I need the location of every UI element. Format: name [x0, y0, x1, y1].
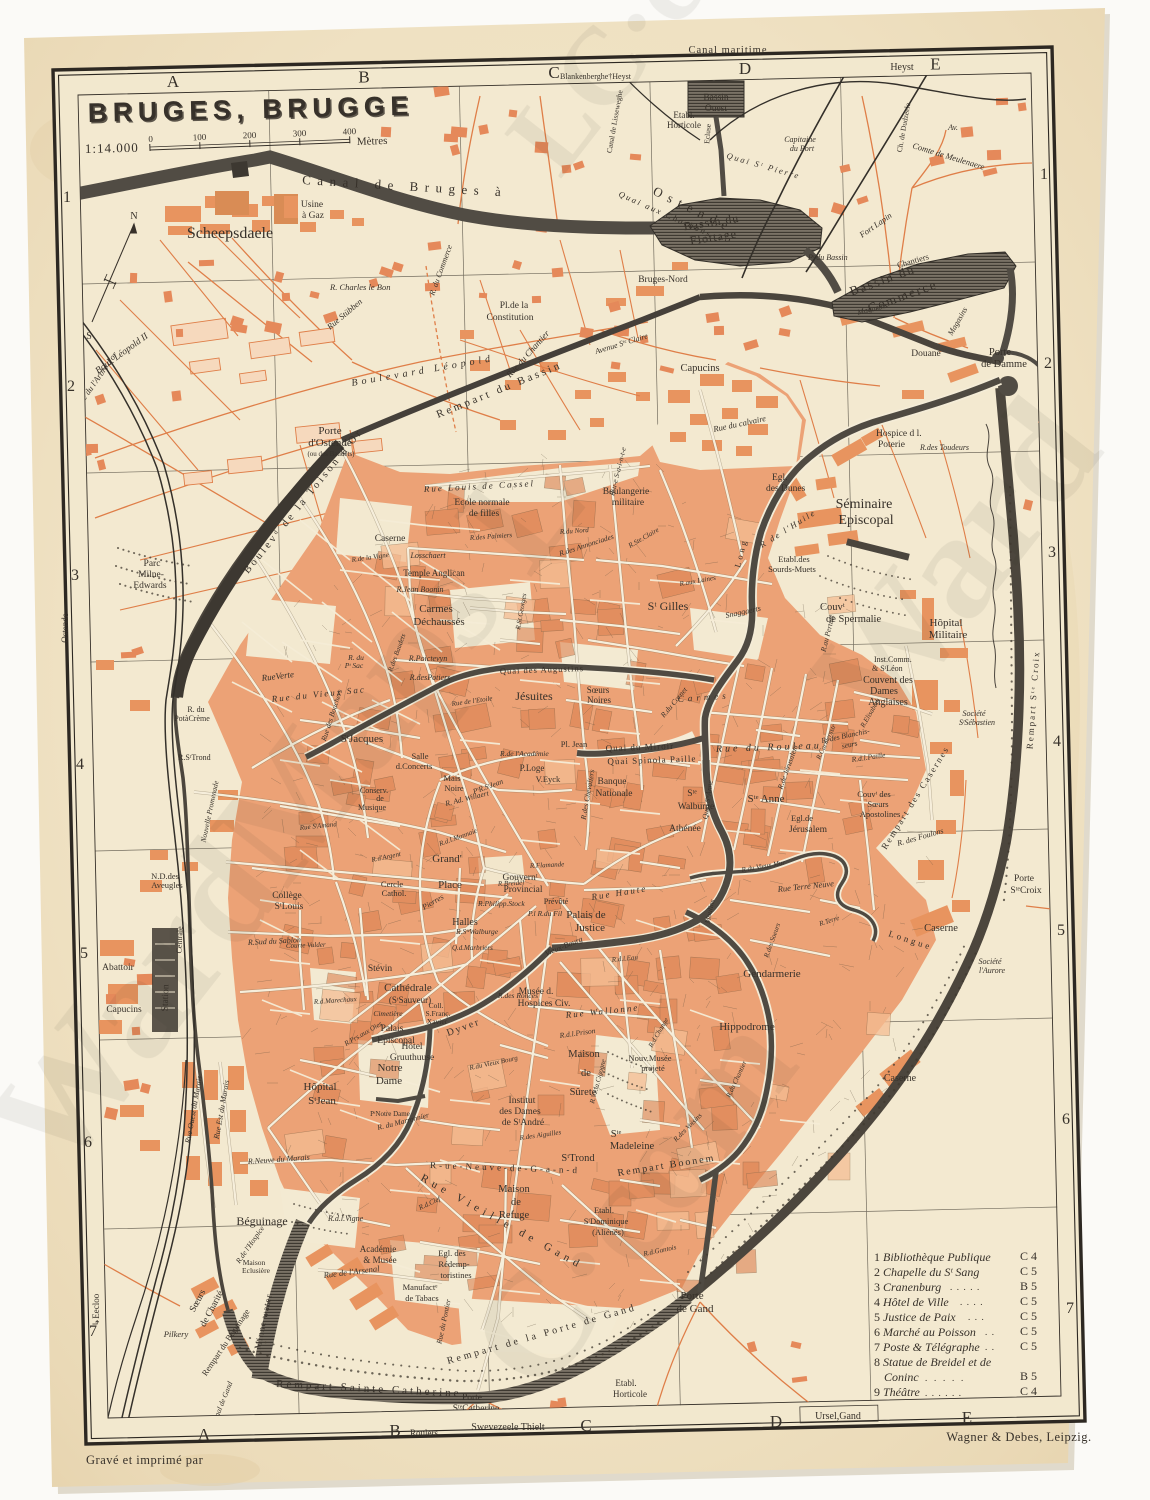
svg-text:E: E	[962, 1408, 972, 1427]
svg-text:Béguinage: Béguinage	[236, 1214, 287, 1228]
svg-text:B: B	[358, 68, 369, 87]
svg-text:Séminaire: Séminaire	[836, 497, 893, 512]
svg-text:Edwards: Edwards	[133, 581, 167, 591]
svg-text:A: A	[198, 1425, 211, 1444]
svg-text:E: E	[930, 55, 940, 74]
svg-text:Cathédrale: Cathédrale	[384, 982, 432, 994]
svg-text:Sourds-Muets: Sourds-Muets	[768, 564, 816, 574]
svg-text:Athénée: Athénée	[669, 824, 701, 834]
svg-text:des Dames: des Dames	[499, 1107, 541, 1117]
svg-text:Manufactᵉ: Manufactᵉ	[403, 1282, 439, 1292]
svg-text:de Gand: de Gand	[677, 1303, 714, 1315]
svg-text:Q.d.Marbriers: Q.d.Marbriers	[452, 944, 493, 952]
svg-text:Porte: Porte	[318, 425, 341, 437]
svg-text:Courte Vulder: Courte Vulder	[286, 941, 326, 950]
svg-text:1: 1	[1040, 166, 1048, 183]
svg-text:Pilkery: Pilkery	[163, 1329, 189, 1339]
svg-text:Canal maritime: Canal maritime	[688, 45, 767, 56]
svg-text:. . . . .: . . . . .	[925, 1373, 963, 1383]
svg-text:Horticole: Horticole	[613, 1389, 647, 1399]
svg-text:Justice: Justice	[575, 922, 605, 934]
svg-text:2: 2	[67, 378, 75, 395]
svg-text:4: 4	[1053, 733, 1061, 750]
svg-text:Noire: Noire	[444, 783, 464, 793]
svg-text:Sœurs: Sœurs	[587, 685, 610, 695]
svg-text:Nationale: Nationale	[596, 789, 633, 799]
svg-text:C: C	[580, 1416, 591, 1435]
svg-text:. . .: . . .	[968, 1312, 984, 1322]
svg-text:Capucins: Capucins	[680, 363, 719, 374]
svg-text:Bassin: Bassin	[703, 93, 729, 103]
svg-text:Notre: Notre	[377, 1062, 402, 1074]
svg-text:de Tabacs: de Tabacs	[405, 1293, 438, 1303]
svg-text:Ursel,Gand: Ursel,Gand	[815, 1411, 861, 1422]
svg-text:A: A	[167, 72, 180, 91]
svg-text:R.SᵗᵉWalburge: R.SᵗᵉWalburge	[455, 927, 499, 936]
svg-text:l'Aurore: l'Aurore	[979, 966, 1005, 975]
svg-text:6: 6	[1062, 1111, 1070, 1128]
svg-text:à Gaz: à Gaz	[302, 211, 324, 221]
svg-text:Heyst: Heyst	[890, 62, 914, 73]
svg-text:Milne-: Milne-	[138, 570, 164, 580]
svg-text:Maison: Maison	[498, 1184, 530, 1195]
svg-text:C 5: C 5	[1020, 1324, 1037, 1338]
svg-text:Xavier: Xavier	[427, 1017, 448, 1026]
svg-text:R.SᵗTrond: R.SᵗTrond	[178, 753, 211, 762]
svg-text:1:14.000: 1:14.000	[85, 140, 139, 156]
svg-text:Ecluse: Ecluse	[702, 123, 713, 144]
svg-text:Institut: Institut	[509, 1096, 536, 1106]
svg-text:C 4: C 4	[1020, 1249, 1037, 1263]
svg-text:SᵗᵉCroix: SᵗᵉCroix	[1010, 886, 1041, 896]
svg-text:3 Cranenburg: 3 Cranenburg	[874, 1280, 941, 1294]
svg-text:P.l R.du Fil: P.l R.du Fil	[527, 909, 562, 918]
svg-text:Horticole: Horticole	[667, 120, 701, 130]
svg-text:↳Eecloo: ↳Eecloo	[91, 1293, 101, 1326]
svg-text:D: D	[739, 59, 751, 78]
svg-text:Roulers: Roulers	[410, 1428, 438, 1438]
svg-text:Cathol.: Cathol.	[382, 888, 407, 898]
svg-text:Eclusière: Eclusière	[242, 1266, 271, 1275]
svg-text:de Damme: de Damme	[981, 359, 1027, 370]
svg-text:Société: Société	[978, 957, 1002, 966]
svg-text:Etabl.des: Etabl.des	[778, 554, 809, 564]
svg-text:Académie: Académie	[360, 1244, 396, 1254]
svg-text:C 5: C 5	[1020, 1264, 1037, 1278]
svg-text:Caserne: Caserne	[884, 1073, 917, 1084]
svg-text:Pl. Jean: Pl. Jean	[561, 739, 588, 749]
svg-text:de: de	[581, 1068, 591, 1079]
svg-text:4 Hôtel de Ville: 4 Hôtel de Ville	[874, 1295, 949, 1309]
svg-text:Sᵗᵉ Anne: Sᵗᵉ Anne	[747, 793, 784, 805]
svg-text:Mais: Mais	[444, 773, 461, 783]
svg-text:C 4: C 4	[1020, 1384, 1037, 1398]
svg-text:2 Chapelle du Sᵗ Sang: 2 Chapelle du Sᵗ Sang	[874, 1265, 979, 1279]
svg-text:Dame: Dame	[376, 1075, 402, 1087]
svg-text:Noires: Noires	[587, 695, 611, 705]
svg-text:N: N	[130, 211, 137, 222]
svg-text:Grand': Grand'	[432, 853, 461, 865]
svg-text:du Port: du Port	[790, 144, 815, 153]
svg-text:R. du: R. du	[187, 705, 204, 714]
svg-text:. . . . .: . . . . .	[950, 1282, 979, 1292]
svg-text:Coninc: Coninc	[884, 1370, 919, 1384]
svg-text:Jérusalem: Jérusalem	[789, 825, 828, 835]
svg-text:Porte: Porte	[989, 347, 1012, 358]
svg-text:R. Charles le Bon: R. Charles le Bon	[329, 282, 390, 292]
svg-text:Etabl.: Etabl.	[615, 1378, 636, 1388]
svg-text:& Musée: & Musée	[363, 1255, 396, 1265]
svg-text:V.Eyck: V.Eyck	[536, 774, 561, 784]
svg-text:Palais de: Palais de	[566, 909, 606, 921]
svg-text:Etabl.: Etabl.	[673, 110, 694, 120]
svg-text:400: 400	[342, 126, 356, 137]
svg-text:Egl.: Egl.	[772, 473, 788, 483]
svg-text:R.des Ronces: R.des Ronces	[497, 991, 538, 1000]
svg-text:P.Loge: P.Loge	[520, 763, 545, 773]
svg-text:Caserne: Caserne	[924, 923, 958, 934]
svg-text:D: D	[770, 1412, 782, 1431]
svg-text:B 5: B 5	[1020, 1279, 1037, 1293]
svg-text:Place: Place	[438, 879, 462, 891]
svg-text:de SᵗAndré: de SᵗAndré	[502, 1118, 544, 1128]
svg-text:Jésuites: Jésuites	[515, 689, 553, 703]
svg-text:Couvᵗ des: Couvᵗ des	[857, 789, 891, 799]
svg-text:Hospice d l.: Hospice d l.	[876, 429, 922, 439]
svg-text:Porte: Porte	[462, 1393, 482, 1403]
svg-text:de: de	[511, 1197, 521, 1208]
svg-text:Scheepsdaele: Scheepsdaele	[187, 225, 273, 242]
svg-text:5: 5	[1057, 922, 1065, 939]
svg-text:R.de l'Académie: R.de l'Académie	[499, 749, 549, 758]
svg-text:Capitaine: Capitaine	[784, 135, 816, 144]
svg-text:5 Justice de Paix: 5 Justice de Paix	[874, 1310, 956, 1324]
svg-text:1: 1	[63, 189, 71, 206]
svg-text:SᵗSébastien: SᵗSébastien	[959, 718, 995, 727]
svg-text:Palais: Palais	[381, 1024, 404, 1034]
svg-text:Constitution: Constitution	[487, 313, 534, 323]
svg-text:B: B	[389, 1421, 400, 1440]
svg-text:Société: Société	[962, 709, 986, 718]
svg-text:Hôtel: Hôtel	[401, 1042, 422, 1052]
svg-text:Sœurs: Sœurs	[867, 799, 888, 809]
svg-text:2: 2	[1044, 355, 1052, 372]
svg-text:Banque: Banque	[597, 777, 626, 787]
svg-text:Gendarmerie: Gendarmerie	[743, 968, 801, 980]
svg-text:8 Statue de Breidel et de: 8 Statue de Breidel et de	[874, 1355, 992, 1369]
svg-text:4: 4	[76, 756, 84, 773]
svg-text:Ouest: Ouest	[705, 104, 728, 114]
svg-text:militaire: militaire	[612, 498, 644, 508]
svg-text:R.Philipp.Stock: R.Philipp.Stock	[477, 899, 525, 908]
svg-text:Sᵗ Gilles: Sᵗ Gilles	[648, 599, 689, 613]
svg-text:Ostende: Ostende	[60, 613, 70, 643]
svg-text:C 5: C 5	[1020, 1294, 1037, 1308]
svg-text:Hôpital: Hôpital	[304, 1081, 337, 1093]
svg-text:C 5: C 5	[1020, 1309, 1037, 1323]
svg-text:200: 200	[243, 130, 257, 141]
svg-text:Wagner & Debes, Leipzig.: Wagner & Debes, Leipzig.	[946, 1430, 1091, 1444]
svg-text:PotàCrème: PotàCrème	[174, 714, 210, 723]
svg-text:300: 300	[293, 128, 307, 139]
svg-text:9 Théâtre: 9 Théâtre	[874, 1385, 921, 1399]
svg-text:1 Bibliothèque Publique: 1 Bibliothèque Publique	[874, 1250, 991, 1264]
svg-text:Mètres: Mètres	[357, 135, 388, 148]
svg-text:S: S	[86, 331, 92, 342]
svg-text:Maison: Maison	[568, 1049, 600, 1060]
svg-text:Parc: Parc	[144, 559, 161, 569]
svg-text:B 5: B 5	[1020, 1369, 1037, 1383]
svg-text:Porte: Porte	[1014, 874, 1034, 884]
svg-text:Prévôté: Prévôté	[544, 897, 569, 906]
svg-text:Egl.de: Egl.de	[791, 813, 813, 823]
svg-text:7: 7	[1066, 1300, 1074, 1317]
svg-text:Douane: Douane	[911, 349, 941, 359]
svg-text:Rédemp-: Rédemp-	[438, 1259, 469, 1269]
svg-text:Av.: Av.	[947, 122, 958, 132]
svg-text:Stévin: Stévin	[368, 964, 393, 974]
svg-text:Hospices Civ.: Hospices Civ.	[518, 999, 571, 1009]
svg-text:Gravé et imprimé par: Gravé et imprimé par	[86, 1453, 204, 1467]
svg-text:. .: . .	[985, 1327, 994, 1337]
svg-text:Usine: Usine	[301, 200, 323, 210]
svg-text:R.Breidel: R.Breidel	[497, 879, 525, 888]
svg-text:R.d.l.Vigne: R.d.l.Vigne	[327, 1214, 364, 1223]
svg-text:Pᵗ du Bassin: Pᵗ du Bassin	[807, 253, 848, 262]
svg-text:. . . .: . . . .	[960, 1297, 983, 1307]
svg-text:des Dunes: des Dunes	[766, 484, 806, 494]
svg-text:Pl.de la: Pl.de la	[500, 301, 529, 311]
svg-text:C 5: C 5	[1020, 1339, 1037, 1353]
svg-text:Porte: Porte	[680, 1290, 703, 1302]
svg-text:. .: . .	[985, 1342, 994, 1352]
svg-text:. . . . . .: . . . . . .	[925, 1388, 961, 1398]
svg-text:Apostolines: Apostolines	[860, 809, 901, 819]
svg-text:Poterie: Poterie	[878, 440, 905, 450]
svg-text:SᵗJean: SᵗJean	[308, 1095, 336, 1107]
svg-text:Sᵗᵉ: Sᵗᵉ	[687, 789, 697, 799]
svg-text:7 Poste & Télégraphe: 7 Poste & Télégraphe	[874, 1340, 980, 1354]
svg-text:Swevezeele Thielt: Swevezeele Thielt	[471, 1422, 545, 1433]
svg-text:100: 100	[193, 132, 207, 143]
svg-text:6 Marché au Poisson: 6 Marché au Poisson	[874, 1325, 976, 1339]
svg-text:Egl. des: Egl. des	[438, 1248, 465, 1258]
svg-text:Bruges-Nord: Bruges-Nord	[638, 275, 688, 285]
svg-text:(SᵗSauveur): (SᵗSauveur)	[389, 995, 431, 1005]
svg-text:Cimetière: Cimetière	[373, 1009, 403, 1018]
svg-text:3: 3	[71, 567, 79, 584]
